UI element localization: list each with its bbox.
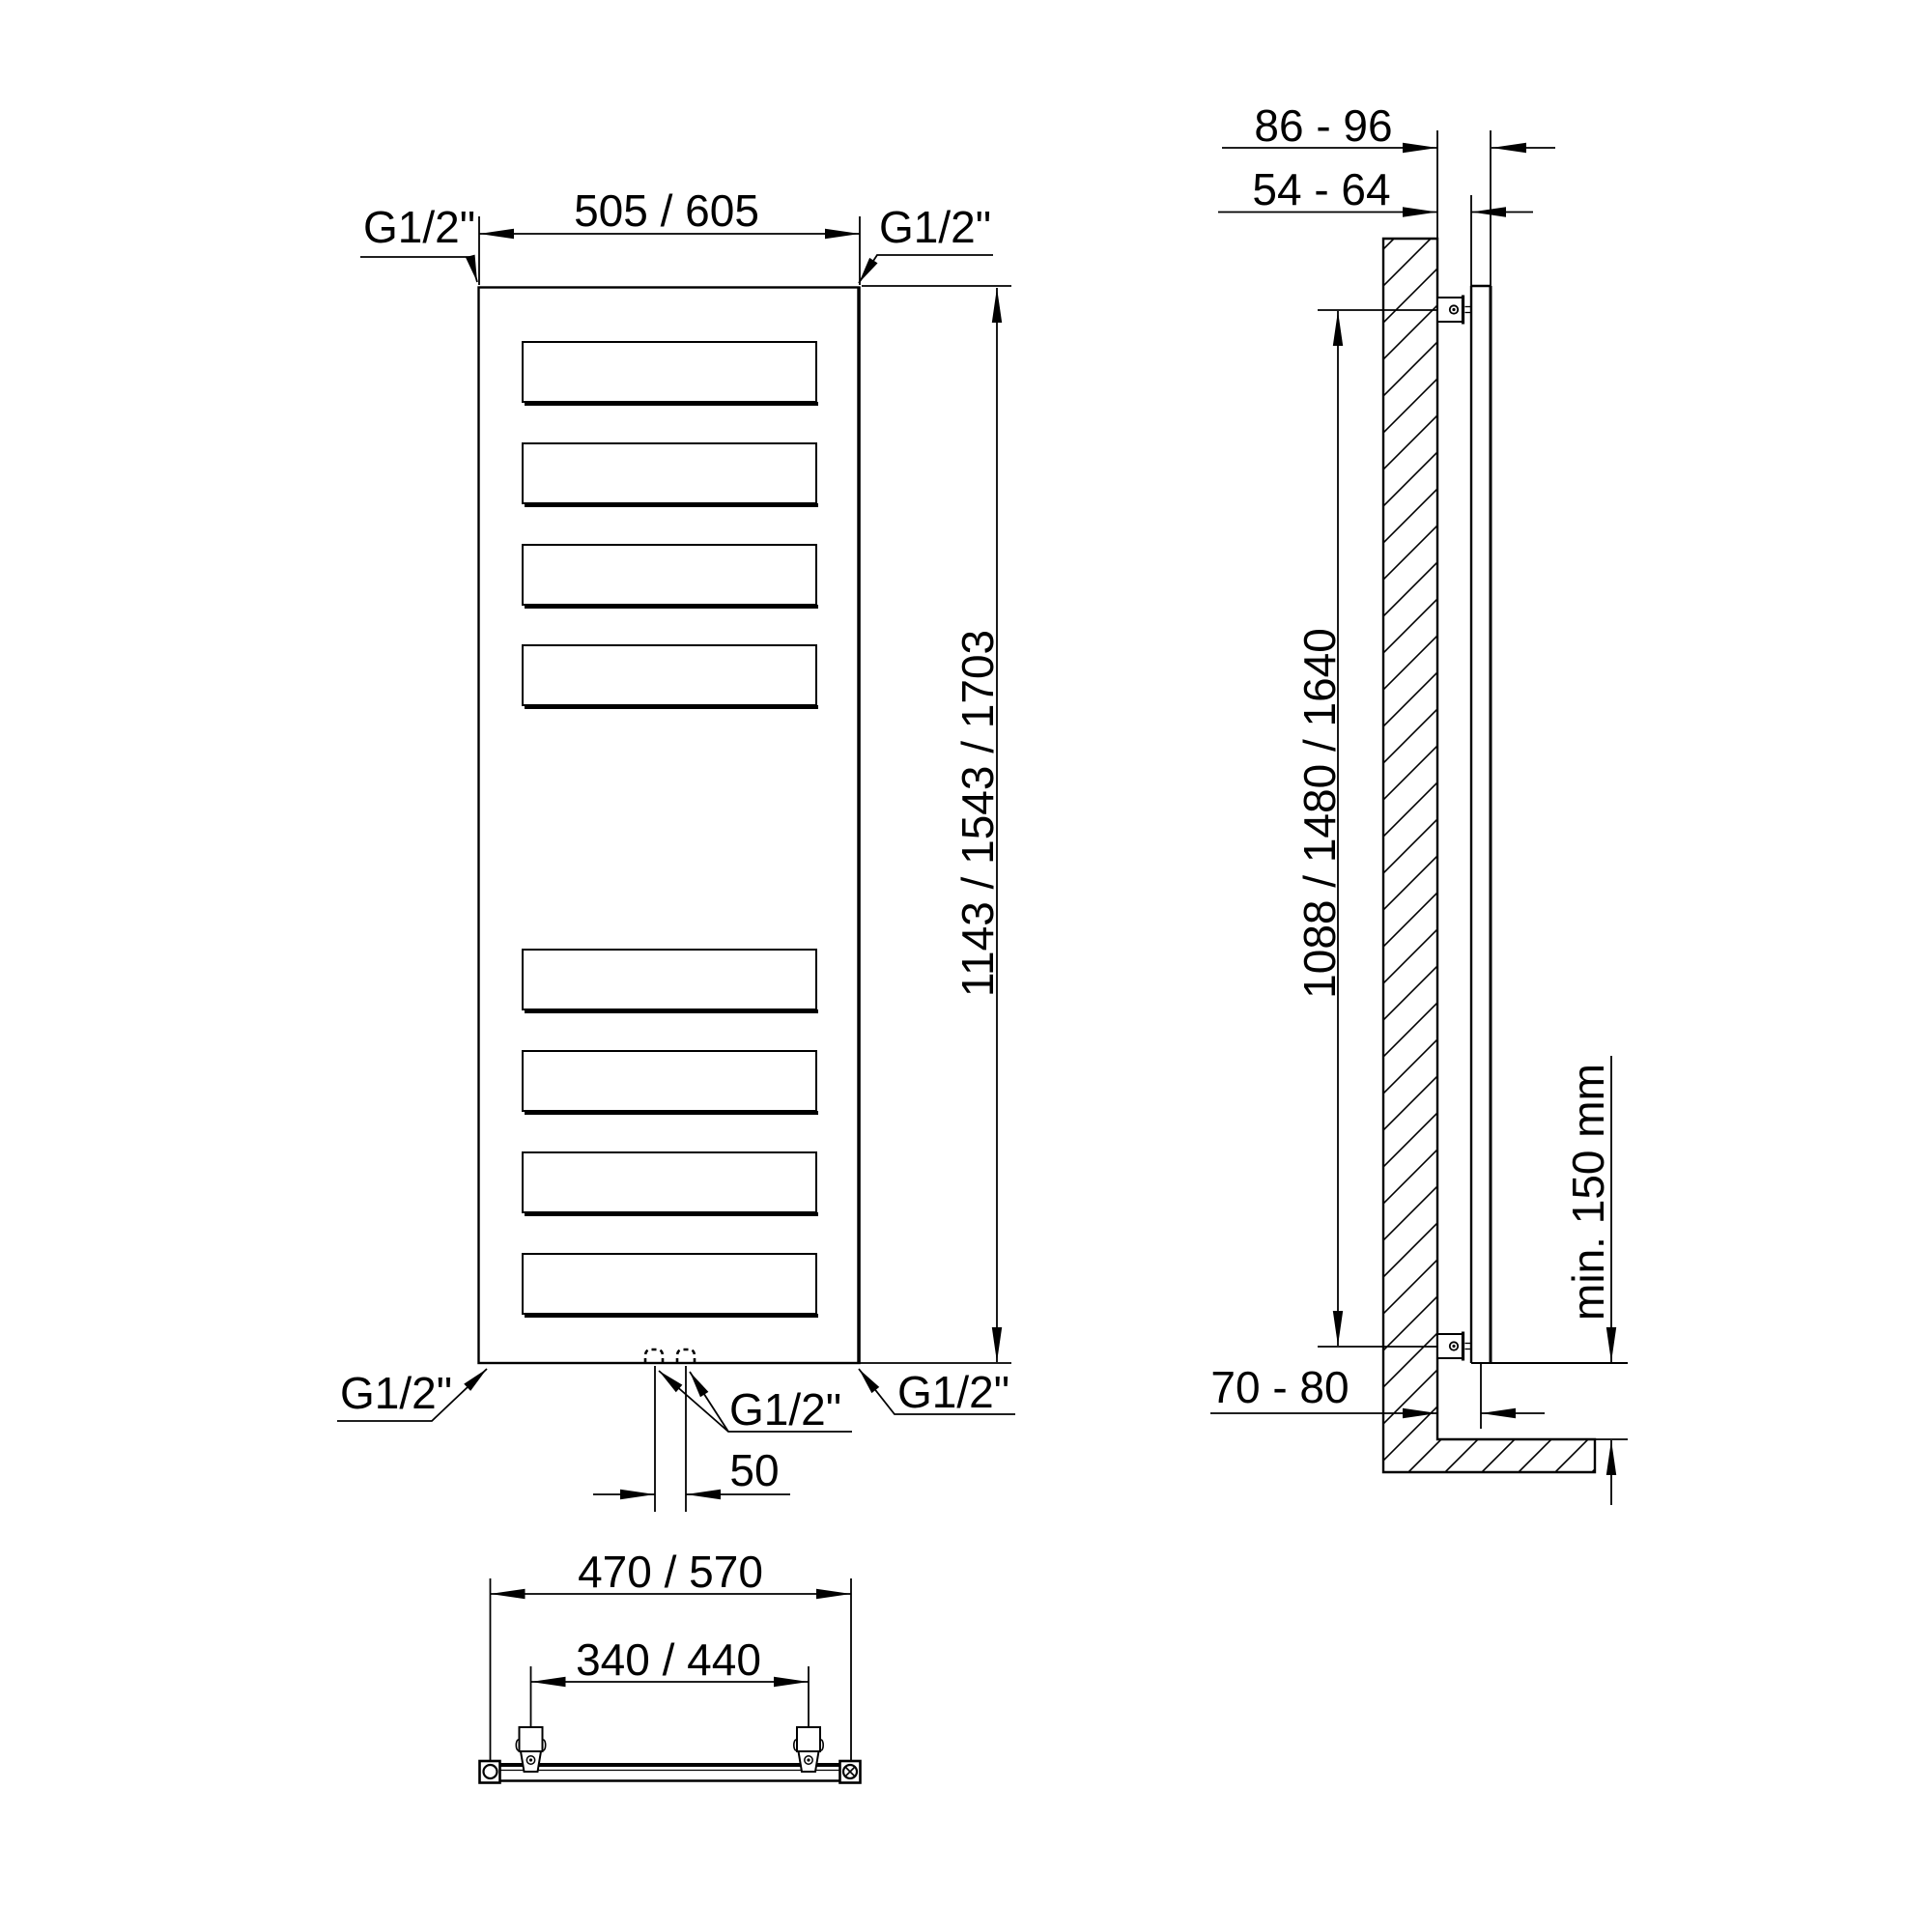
svg-text:min. 150 mm: min. 150 mm <box>1563 1064 1613 1321</box>
svg-text:54 - 64: 54 - 64 <box>1252 164 1390 214</box>
svg-text:70 - 80: 70 - 80 <box>1210 1362 1349 1412</box>
svg-text:1143 / 1543 / 1703: 1143 / 1543 / 1703 <box>952 630 1003 997</box>
svg-text:G1/2": G1/2" <box>879 202 991 252</box>
svg-text:505 / 605: 505 / 605 <box>574 185 759 236</box>
svg-text:50: 50 <box>729 1445 779 1495</box>
svg-text:1088 / 1480 / 1640: 1088 / 1480 / 1640 <box>1294 628 1345 999</box>
svg-text:340 / 440: 340 / 440 <box>576 1634 761 1685</box>
svg-text:G1/2": G1/2" <box>729 1384 841 1435</box>
svg-text:G1/2": G1/2" <box>897 1367 1009 1417</box>
svg-text:86 - 96: 86 - 96 <box>1254 100 1392 151</box>
svg-text:G1/2": G1/2" <box>340 1368 452 1418</box>
svg-text:G1/2": G1/2" <box>363 202 475 252</box>
svg-text:470 / 570: 470 / 570 <box>578 1547 763 1597</box>
